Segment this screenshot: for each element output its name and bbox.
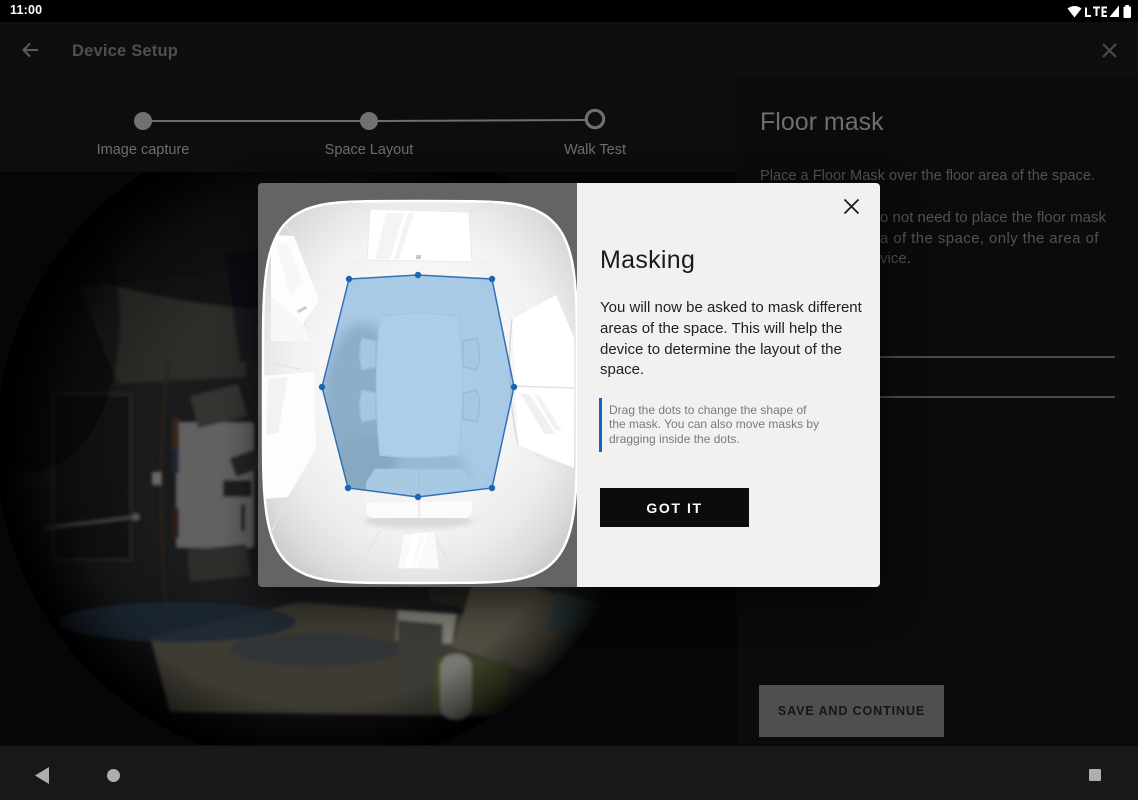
svg-text:Space Layout: Space Layout (325, 142, 414, 158)
svg-text:Walk Test: Walk Test (564, 142, 626, 158)
svg-text:Image capture: Image capture (97, 142, 190, 158)
